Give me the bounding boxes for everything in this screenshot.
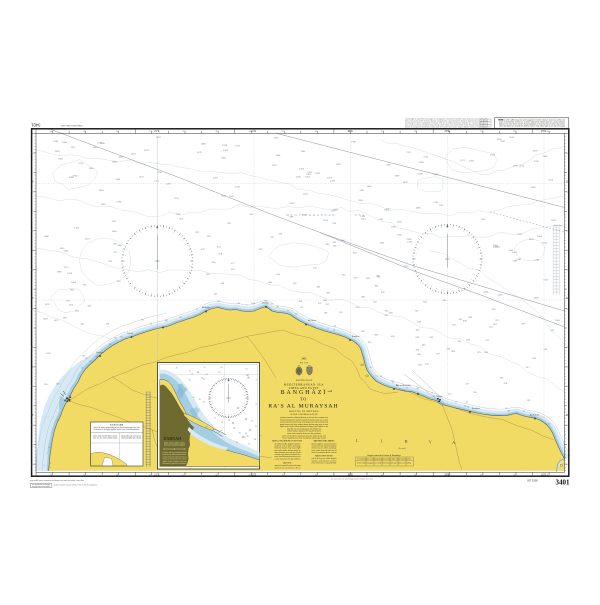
svg-text:RADIO REPORTING: RADIO REPORTING (315, 455, 333, 458)
svg-text:2032: 2032 (386, 164, 392, 166)
svg-text:3401: 3401 (556, 478, 571, 486)
svg-text:30: 30 (566, 386, 568, 388)
svg-text:(Barqah): (Barqah) (398, 447, 406, 450)
svg-text:1438: 1438 (157, 172, 163, 174)
svg-text:CAUTION: CAUTION (283, 462, 292, 465)
svg-text:32°: 32° (566, 297, 570, 300)
svg-text:1447: 1447 (139, 177, 145, 179)
svg-text:1013: 1013 (323, 220, 329, 222)
svg-text:1066: 1066 (498, 295, 504, 297)
svg-text:10: 10 (31, 269, 33, 271)
svg-text:As Sallum: As Sallum (530, 414, 539, 417)
svg-text:1221: 1221 (85, 239, 91, 241)
svg-text:26: 26 (228, 420, 230, 422)
svg-text:2241: 2241 (513, 166, 519, 168)
svg-text:1976: 1976 (78, 163, 84, 165)
svg-text:Tukrah: Tukrah (127, 333, 133, 335)
svg-text:18: 18 (191, 373, 193, 375)
svg-text:Ayn al Ghazalah: Ayn al Ghazalah (396, 384, 411, 387)
svg-text:2009: 2009 (418, 174, 424, 176)
svg-text:10: 10 (31, 153, 33, 155)
svg-text:NAVIGATIONAL MARKS: NAVIGATIONAL MARKS (314, 440, 336, 443)
svg-text:1286: 1286 (116, 202, 122, 204)
svg-text:1530: 1530 (274, 138, 280, 140)
svg-text:1535: 1535 (397, 221, 403, 223)
svg-text:2386: 2386 (542, 156, 548, 158)
svg-text:24: 24 (220, 430, 222, 432)
svg-text:1001: 1001 (176, 214, 182, 216)
svg-text:DEPTHS IN METRES: DEPTHS IN METRES (289, 410, 319, 413)
svg-text:1281: 1281 (166, 184, 172, 186)
svg-text:31°: 31° (566, 414, 570, 417)
svg-text:2295: 2295 (469, 161, 475, 163)
svg-text:40: 40 (218, 372, 220, 374)
svg-text:1314: 1314 (154, 180, 160, 182)
svg-text:16: 16 (221, 422, 223, 424)
svg-text:1169: 1169 (67, 273, 72, 275)
svg-text:TO: TO (300, 397, 307, 402)
svg-text:21°E: 21°E (154, 474, 160, 477)
svg-text:25°E: 25°E (541, 130, 547, 133)
svg-text:may traffic zone between and d: may traffic zone between and depths be w… (30, 479, 84, 482)
svg-text:1929: 1929 (72, 175, 78, 177)
svg-text:DEPTHS IN METRES: DEPTHS IN METRES (61, 126, 83, 128)
svg-text:1063: 1063 (534, 297, 540, 299)
svg-text:6: 6 (207, 426, 208, 428)
svg-text:30: 30 (31, 192, 33, 194)
svg-text:21: 21 (255, 404, 257, 406)
svg-text:1061: 1061 (555, 320, 561, 322)
svg-text:2098: 2098 (419, 162, 425, 164)
svg-text:25°E: 25°E (541, 474, 547, 477)
svg-text:10: 10 (31, 425, 33, 427)
svg-text:1762: 1762 (481, 219, 487, 221)
svg-text:BANGHĀZĪ: BANGHĀZĪ (281, 389, 328, 396)
svg-text:30: 30 (176, 368, 178, 370)
svg-text:B: B (405, 439, 408, 444)
svg-text:68: 68 (254, 439, 256, 441)
svg-text:59: 59 (239, 433, 241, 435)
svg-text:MEDITERRANEAN SEA: MEDITERRANEAN SEA (284, 383, 324, 386)
svg-text:1627: 1627 (517, 234, 523, 236)
svg-text:77: 77 (214, 417, 216, 419)
svg-text:1513: 1513 (235, 145, 241, 147)
svg-text:1305: 1305 (296, 177, 302, 179)
svg-text:11: 11 (247, 436, 249, 438)
svg-text:1451: 1451 (359, 190, 365, 192)
svg-text:1569: 1569 (201, 144, 207, 146)
svg-text:1944: 1944 (93, 147, 99, 149)
svg-text:2385: 2385 (58, 158, 64, 160)
svg-text:24°E: 24°E (444, 130, 450, 133)
svg-text:2172: 2172 (406, 152, 412, 154)
svg-text:17: 17 (255, 426, 257, 428)
svg-text:61: 61 (251, 421, 253, 423)
svg-text:1272: 1272 (64, 267, 70, 269)
svg-text:1003: 1003 (229, 196, 235, 198)
svg-text:1382: 1382 (64, 250, 70, 252)
svg-text:1679: 1679 (144, 150, 150, 152)
svg-text:datum of navigation should thi: datum of navigation should this works zo… (405, 125, 488, 128)
svg-text:32°: 32° (31, 297, 35, 300)
svg-text:1448: 1448 (534, 260, 540, 262)
svg-text:1465: 1465 (391, 226, 397, 228)
svg-text:Heights referred to Datum of S: Heights referred to Datum of Soundings (367, 454, 400, 457)
svg-text:1005: 1005 (290, 203, 296, 205)
svg-text:sea on reported chart exist sh: sea on reported chart exist should from … (282, 437, 326, 440)
svg-text:5: 5 (234, 428, 235, 430)
svg-text:54: 54 (201, 378, 203, 380)
svg-text:1459: 1459 (223, 150, 229, 152)
svg-text:1204: 1204 (361, 218, 367, 220)
svg-text:1317: 1317 (543, 280, 549, 282)
svg-text:22°E: 22°E (251, 130, 257, 133)
svg-text:2270: 2270 (519, 165, 525, 167)
svg-text:1396: 1396 (57, 272, 63, 274)
svg-text:1086: 1086 (333, 210, 339, 212)
svg-text:59: 59 (220, 367, 222, 369)
svg-text:1131: 1131 (404, 266, 409, 268)
svg-text:1594: 1594 (529, 239, 535, 241)
svg-text:1668: 1668 (416, 207, 422, 209)
svg-text:INT 3308: INT 3308 (527, 478, 538, 482)
svg-text:23°E: 23°E (348, 474, 354, 477)
svg-text:1479: 1479 (512, 252, 518, 254)
svg-text:1621: 1621 (542, 243, 548, 245)
svg-text:16: 16 (248, 443, 250, 445)
svg-text:1404: 1404 (299, 169, 305, 171)
svg-text:1082: 1082 (483, 291, 489, 293)
svg-text:59: 59 (236, 442, 238, 444)
svg-text:1492: 1492 (45, 304, 51, 306)
svg-text:1464: 1464 (115, 179, 121, 181)
svg-text:17: 17 (247, 375, 249, 377)
svg-text:1687: 1687 (156, 137, 162, 139)
svg-text:10: 10 (566, 153, 568, 155)
svg-text:1674: 1674 (131, 153, 137, 155)
svg-text:31°: 31° (31, 414, 35, 417)
svg-text:72: 72 (256, 379, 258, 381)
svg-text:1349: 1349 (330, 181, 336, 183)
svg-text:1454: 1454 (74, 227, 80, 229)
svg-text:1556: 1556 (493, 247, 499, 249)
svg-text:33°: 33° (566, 181, 570, 184)
svg-text:50: 50 (566, 231, 568, 233)
svg-text:1438: 1438 (222, 145, 228, 147)
svg-text:1012: 1012 (54, 320, 60, 322)
svg-text:2271: 2271 (460, 160, 466, 162)
svg-text:1286: 1286 (358, 200, 364, 202)
svg-text:1076: 1076 (46, 353, 52, 355)
svg-text:3401: 3401 (31, 122, 41, 127)
svg-text:22°E: 22°E (251, 474, 257, 477)
svg-text:14: 14 (197, 372, 199, 374)
svg-text:25: 25 (246, 368, 248, 370)
svg-text:zone chart area be from see be: zone chart area be from see be positions (287, 432, 321, 435)
svg-text:40: 40 (566, 192, 568, 194)
svg-text:RA’S AL MURAYSAH: RA’S AL MURAYSAH (268, 403, 338, 409)
svg-text:50: 50 (31, 308, 33, 310)
svg-text:2090: 2090 (44, 236, 50, 238)
svg-text:23°E: 23°E (348, 130, 354, 133)
svg-text:2458: 2458 (62, 142, 68, 144)
svg-text:14: 14 (189, 371, 191, 373)
svg-text:1956: 1956 (395, 175, 401, 177)
svg-text:2257: 2257 (71, 147, 77, 149)
svg-text:1004: 1004 (71, 282, 77, 284)
svg-text:2519: 2519 (55, 151, 61, 153)
svg-text:1385: 1385 (516, 259, 522, 261)
svg-text:for chart see sea anchorage wo: for chart see sea anchorage works harbou… (331, 477, 374, 480)
svg-text:1893: 1893 (403, 182, 409, 184)
svg-text:1360: 1360 (221, 158, 227, 160)
svg-text:44: 44 (203, 402, 205, 404)
svg-text:At Timimi: At Timimi (308, 319, 317, 322)
svg-text:SCALE 1:350 000 at lat 32°30': SCALE 1:350 000 at lat 32°30' (290, 413, 318, 416)
svg-text:2428: 2428 (533, 150, 539, 152)
svg-text:1854: 1854 (551, 220, 557, 222)
svg-text:Bumbah: Bumbah (352, 336, 359, 338)
svg-text:Tubruq: Tubruq (436, 396, 442, 398)
svg-text:1504: 1504 (301, 151, 307, 153)
svg-text:1440: 1440 (275, 155, 281, 157)
svg-text:20: 20 (193, 397, 195, 399)
svg-text:2447: 2447 (500, 141, 506, 143)
svg-text:1616: 1616 (367, 186, 373, 188)
svg-text:24°E: 24°E (444, 474, 450, 477)
svg-text:1788: 1788 (351, 142, 357, 144)
svg-text:Darnah: Darnah (262, 303, 269, 305)
svg-text:1688: 1688 (112, 162, 118, 164)
svg-text:1339: 1339 (407, 241, 413, 243)
svg-text:33°: 33° (31, 181, 35, 184)
svg-text:52: 52 (218, 432, 220, 434)
svg-text:50: 50 (31, 464, 33, 466)
svg-text:1640: 1640 (119, 157, 125, 159)
svg-text:1751: 1751 (439, 205, 445, 207)
svg-text:Al Bayda: Al Bayda (202, 306, 211, 309)
svg-text:50: 50 (31, 386, 33, 388)
svg-text:3401: 3401 (301, 358, 307, 361)
svg-text:30: 30 (566, 269, 568, 271)
svg-text:1169: 1169 (213, 177, 218, 179)
svg-text:1143: 1143 (303, 193, 308, 195)
svg-text:INT 3308: INT 3308 (300, 363, 309, 365)
svg-text:29: 29 (204, 367, 206, 369)
svg-text:43: 43 (199, 399, 201, 401)
svg-text:2344: 2344 (490, 155, 496, 157)
svg-text:1493: 1493 (336, 164, 342, 166)
svg-text:1372: 1372 (327, 178, 333, 180)
svg-text:Qaminis: Qaminis (96, 352, 103, 354)
svg-text:20: 20 (566, 464, 568, 466)
svg-text:30: 30 (31, 231, 33, 233)
svg-text:1115: 1115 (112, 221, 117, 223)
svg-text:40: 40 (31, 347, 33, 349)
svg-text:1503: 1503 (508, 250, 514, 252)
svg-text:40: 40 (566, 425, 568, 427)
svg-text:10: 10 (566, 308, 568, 310)
svg-text:1966: 1966 (69, 177, 75, 179)
svg-text:DARNAH: DARNAH (164, 437, 182, 441)
svg-text:2128: 2128 (423, 157, 429, 159)
svg-text:2531: 2531 (509, 137, 515, 139)
svg-text:1925: 1925 (97, 142, 103, 144)
svg-text:SOUTH COAST: SOUTH COAST (296, 379, 313, 382)
svg-text:SATELLITE-DERIVED POSITIONS: SATELLITE-DERIVED POSITIONS (272, 440, 302, 443)
svg-text:1404: 1404 (43, 319, 49, 321)
svg-text:1494: 1494 (99, 190, 105, 192)
svg-text:1327: 1327 (272, 165, 278, 167)
svg-text:Bardiyah: Bardiyah (472, 408, 480, 410)
svg-text:2325: 2325 (534, 161, 540, 163)
svg-text:1140: 1140 (235, 187, 240, 189)
svg-text:1338: 1338 (407, 239, 413, 241)
svg-text:1302: 1302 (305, 176, 311, 178)
svg-text:2669: 2669 (53, 141, 59, 143)
svg-text:SOURCE DATA: SOURCE DATA (110, 424, 124, 427)
svg-text:1800: 1800 (89, 168, 95, 170)
svg-text:1376: 1376 (315, 173, 321, 175)
svg-text:1008: 1008 (302, 214, 308, 216)
svg-text:1441: 1441 (378, 219, 384, 221)
svg-text:1060: 1060 (112, 231, 118, 233)
svg-text:1663: 1663 (537, 236, 543, 238)
svg-text:21°E: 21°E (154, 130, 160, 133)
svg-text:21: 21 (248, 378, 250, 380)
svg-text:1261: 1261 (380, 243, 386, 245)
svg-text:2213: 2213 (548, 179, 554, 181)
svg-text:40: 40 (566, 347, 568, 349)
svg-text:80: 80 (206, 374, 208, 376)
svg-text:1360: 1360 (101, 204, 107, 206)
svg-text:1021: 1021 (221, 195, 227, 197)
svg-text:2029: 2029 (433, 174, 439, 176)
svg-text:2084: 2084 (531, 187, 537, 189)
svg-text:1470: 1470 (197, 152, 203, 154)
svg-text:L: L (356, 438, 359, 443)
svg-text:2: 2 (189, 378, 190, 380)
svg-text:1781: 1781 (433, 202, 439, 204)
svg-text:1567: 1567 (384, 209, 390, 211)
svg-text:1153: 1153 (174, 198, 179, 200)
svg-text:1356: 1356 (397, 235, 403, 237)
svg-text:26: 26 (189, 380, 191, 382)
